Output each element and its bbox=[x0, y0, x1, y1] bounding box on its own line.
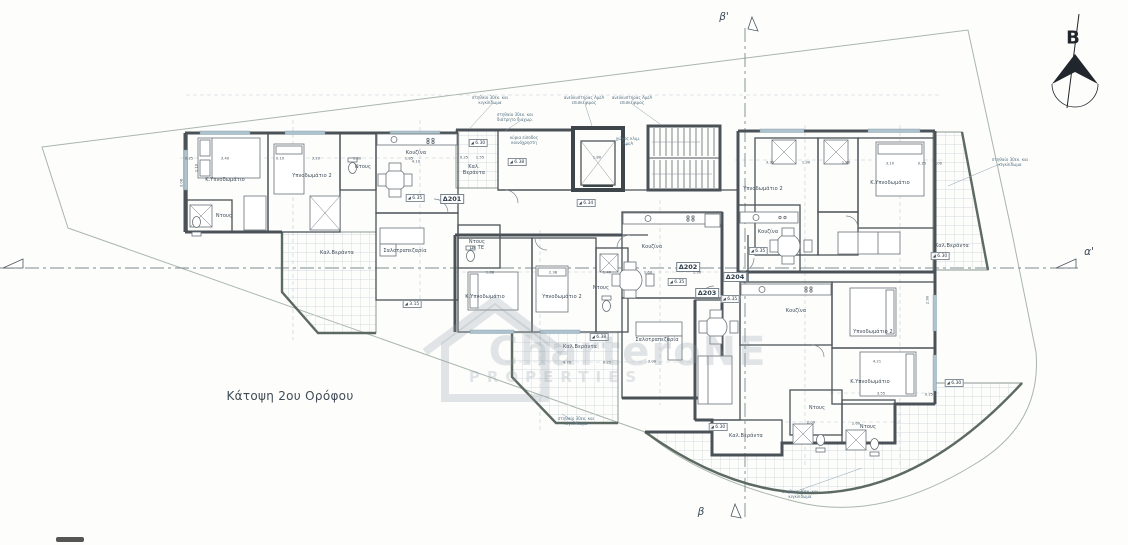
north-label: B bbox=[1066, 28, 1080, 49]
plan-title: Κάτοψη 2ου Ορόφου bbox=[226, 389, 353, 403]
scan-artifact bbox=[56, 537, 84, 542]
watermark-subtext: PROPERTIES bbox=[469, 368, 643, 386]
floor-plan-drawing: Κ.ΥπνοδωμάτιοΥπνοδωμάτιο 2ΝτουςΝτουςΚουζ… bbox=[0, 0, 1128, 545]
staircase bbox=[648, 126, 720, 190]
wardrobe bbox=[244, 196, 340, 230]
section-marker-beta-top: β' bbox=[719, 11, 729, 23]
section-marker-alpha-right: α' bbox=[1084, 246, 1094, 258]
section-marker-beta-bottom: β bbox=[698, 506, 705, 518]
plan-linework bbox=[0, 0, 1128, 545]
elevator bbox=[573, 128, 623, 190]
veranda-southwest bbox=[282, 232, 376, 333]
veranda-north-small bbox=[456, 130, 498, 188]
veranda-east bbox=[933, 132, 988, 270]
